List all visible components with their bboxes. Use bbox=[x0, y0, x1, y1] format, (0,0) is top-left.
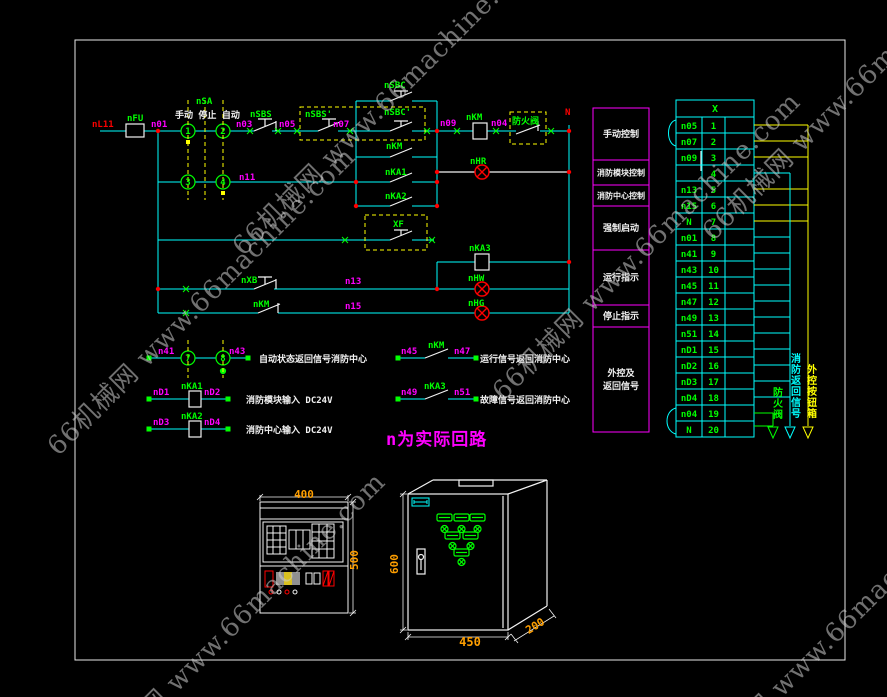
legend-coil-symbol-nKA1 bbox=[189, 391, 201, 407]
annotation-label: 消防模块控制 bbox=[597, 168, 645, 178]
terminal-cable-brackets bbox=[667, 120, 676, 434]
terminal-row-label: nD3 bbox=[681, 378, 697, 388]
terminal-row-label: n13 bbox=[681, 186, 697, 196]
terminal-row-label: n41 bbox=[681, 250, 697, 260]
legend-desc-fault: 故障信号返回消防中心 bbox=[480, 394, 570, 406]
trunk-label-char: 控 bbox=[807, 374, 817, 387]
cable-arrow-yellow bbox=[803, 427, 813, 438]
cabinet-indicators bbox=[437, 514, 485, 566]
terminal-row-label: n45 bbox=[681, 282, 697, 292]
legend-contact-nKM: nKM bbox=[428, 341, 445, 351]
cabinet-top-vent bbox=[459, 480, 493, 486]
legend-wire-nD4: nD4 bbox=[204, 418, 221, 428]
wire-label-n04: n04 bbox=[491, 119, 508, 129]
cad-drawing-canvas: nL11nFUn01nSA手动 停止 自动n03nSBSn05nSBS'n07n… bbox=[0, 0, 887, 697]
cable-arrow-green bbox=[768, 427, 778, 438]
contact-label-nSBC: nSBC bbox=[384, 81, 406, 91]
legend-wire-n51: n51 bbox=[454, 388, 470, 398]
terminal-row-number: 7 bbox=[711, 218, 716, 228]
legend-wire-nD2: nD2 bbox=[204, 388, 220, 398]
annotation-column: 手动控制消防模块控制消防中心控制强制启动运行指示停止指示外控及返回信号 bbox=[593, 108, 649, 432]
neutral-label-N: N bbox=[565, 108, 570, 118]
trunk-label-char: 按 bbox=[807, 385, 817, 398]
contact-label-nKM-nc: nKM bbox=[253, 300, 270, 310]
cabinet-front-view bbox=[257, 494, 356, 616]
breaker-2 bbox=[289, 530, 310, 549]
terminal-row-number: 13 bbox=[708, 314, 719, 324]
terminal-row-number: 12 bbox=[708, 298, 719, 308]
terminal-row-label: n47 bbox=[681, 298, 697, 308]
legend-wire-n47: n47 bbox=[454, 347, 470, 357]
selector-contact-2: 2 bbox=[220, 127, 225, 137]
legend-contact-nKA3: nKA3 bbox=[424, 382, 446, 392]
terminal-row-label: nD4 bbox=[681, 394, 698, 404]
terminal-row-number: 10 bbox=[708, 266, 719, 276]
terminal-row-label: nD1 bbox=[681, 346, 697, 356]
annotation-label: 消防中心控制 bbox=[597, 191, 645, 201]
legend-coil-nKA2: nKA2 bbox=[181, 412, 203, 422]
wire-label-nL11: nL11 bbox=[92, 120, 114, 130]
terminal-row-number: 20 bbox=[708, 426, 719, 436]
terminal-row-label: n05 bbox=[681, 122, 697, 132]
wire-label-n01: n01 bbox=[151, 120, 167, 130]
coil-nKM bbox=[473, 123, 487, 139]
terminal-row-label: N bbox=[686, 426, 691, 436]
terminal-row-number: 5 bbox=[711, 186, 716, 196]
cable-arrow-cyan bbox=[785, 427, 795, 438]
legend-wire-nD3: nD3 bbox=[153, 418, 169, 428]
trunk-label-char: 钮 bbox=[806, 396, 817, 409]
contact-label-nSBC-prime: nSBC' bbox=[384, 108, 411, 118]
selector-contact-8: 8 bbox=[220, 354, 225, 364]
selector-contacts bbox=[181, 124, 230, 374]
terminal-row-number: 17 bbox=[708, 378, 719, 388]
coil-label-nKM: nKM bbox=[466, 113, 483, 123]
selector-linkage-lines bbox=[188, 100, 223, 378]
coil-nKA3 bbox=[475, 254, 489, 270]
dim-front-width: 400 bbox=[294, 488, 314, 501]
trunk-label-char: 防 bbox=[791, 363, 801, 376]
junction-dots bbox=[156, 129, 571, 291]
terminal-row-number: 9 bbox=[711, 250, 716, 260]
terminal-row-number: 1 bbox=[711, 122, 716, 132]
damper-box-label: 防火阀 bbox=[512, 115, 539, 127]
wire-label-n07: n07 bbox=[333, 120, 349, 130]
terminal-row-label: n07 bbox=[681, 138, 697, 148]
terminal-row-label: n01 bbox=[681, 234, 697, 244]
selector-contact-1: 1 bbox=[185, 127, 190, 137]
wire-label-n03: n03 bbox=[236, 120, 252, 130]
indicator-lamps bbox=[475, 165, 489, 320]
cabinet-3d-view bbox=[400, 480, 556, 643]
terminal-row-number: 15 bbox=[708, 346, 719, 356]
selector-mode-text: 手动 停止 自动 bbox=[175, 109, 240, 121]
terminal-row-number: 8 bbox=[711, 234, 716, 244]
trunk-label-char: 返 bbox=[791, 374, 801, 387]
legend-desc-run: 运行信号返回消防中心 bbox=[480, 353, 570, 365]
terminal-row-number: 19 bbox=[708, 410, 719, 420]
legend-wire-n41: n41 bbox=[158, 347, 174, 357]
terminal-row-label: n49 bbox=[681, 314, 697, 324]
selector-label-nSA: nSA bbox=[196, 97, 213, 107]
contact-label-nXB: nXB bbox=[241, 276, 258, 286]
selector-contact-7: 7 bbox=[185, 354, 190, 364]
selector-contact-3: 3 bbox=[185, 178, 190, 188]
trunk-label-char: 外 bbox=[806, 363, 817, 376]
dim-box-width: 450 bbox=[459, 635, 481, 649]
legend-wire-n49: n49 bbox=[401, 388, 417, 398]
annotation-label: 手动控制 bbox=[603, 128, 639, 140]
terminal-row-number: 6 bbox=[711, 202, 716, 212]
rail-end-clamp bbox=[265, 571, 273, 587]
legend-desc-auto: 自动状态返回信号消防中心 bbox=[259, 353, 367, 365]
trunk-label-char: 箱 bbox=[807, 407, 817, 420]
terminal-row-number: 4 bbox=[711, 170, 717, 180]
legend-coil-nKA1: nKA1 bbox=[181, 382, 203, 392]
contact-label-nKM-hold: nKM bbox=[386, 142, 403, 152]
terminal-row-number: 14 bbox=[708, 330, 719, 340]
terminal-row-label: nD2 bbox=[681, 362, 697, 372]
fuse-symbol bbox=[126, 124, 144, 137]
button-label-nSBS-prime: nSBS' bbox=[305, 110, 332, 120]
coil-label-nKA3: nKA3 bbox=[469, 244, 491, 254]
trunk-label-char: 消 bbox=[791, 352, 801, 365]
terminal-row-label: N bbox=[686, 218, 691, 228]
note-text: n为实际回路 bbox=[386, 429, 487, 450]
wire-label-n11: n11 bbox=[239, 173, 255, 183]
lamp-label-nHW: nHW bbox=[468, 274, 485, 284]
legend-wire-n45: n45 bbox=[401, 347, 417, 357]
wire-label-n13: n13 bbox=[345, 277, 361, 287]
dashed-remote-boxes bbox=[188, 100, 546, 378]
wire-label-n15: n15 bbox=[345, 302, 361, 312]
terminal-row-number: 11 bbox=[708, 282, 719, 292]
terminal-row-number: 18 bbox=[708, 394, 719, 404]
terminal-row-label: n43 bbox=[681, 266, 697, 276]
lamp-label-nHR: nHR bbox=[470, 157, 487, 167]
dim-front-height: 500 bbox=[348, 550, 361, 570]
terminal-row-label: n15 bbox=[681, 202, 697, 212]
contact-label-XF: XF bbox=[393, 220, 404, 230]
terminal-row-number: 2 bbox=[711, 138, 716, 148]
wire-label-n05: n05 bbox=[279, 120, 295, 130]
selector-contact-4: 4 bbox=[220, 178, 226, 188]
button-label-nSBS: nSBS bbox=[250, 110, 272, 120]
annotation-label: 停止指示 bbox=[603, 310, 639, 322]
terminal-row-number: 16 bbox=[708, 362, 719, 372]
contact-label-nKA2: nKA2 bbox=[385, 192, 407, 202]
terminal-row-label: n51 bbox=[681, 330, 697, 340]
contact-label-nKA1: nKA1 bbox=[385, 168, 407, 178]
legend-desc-module: 消防模块输入 DC24V bbox=[246, 394, 333, 406]
cable-trunk-labels: 防火阀消防返回信号外控按钮箱 bbox=[773, 352, 817, 421]
fuse-label-nFU: nFU bbox=[127, 114, 143, 124]
annotation-label: 返回信号 bbox=[603, 380, 639, 392]
annotation-label: 运行指示 bbox=[603, 272, 639, 284]
trunk-label-char: 防 bbox=[773, 386, 783, 399]
legend-wire-n43: n43 bbox=[229, 347, 245, 357]
annotation-label: 外控及 bbox=[606, 367, 635, 379]
annotation-label: 强制启动 bbox=[603, 222, 639, 234]
trunk-label-char: 阀 bbox=[773, 408, 783, 421]
annotation-box bbox=[593, 327, 649, 432]
trunk-label-char: 信 bbox=[791, 396, 801, 409]
legend-coil-symbol-nKA2 bbox=[189, 421, 201, 437]
legend-desc-center: 消防中心输入 DC24V bbox=[246, 424, 333, 436]
trunk-label-char: 号 bbox=[791, 408, 801, 420]
cabinet-nameplate bbox=[412, 498, 429, 506]
terminal-row-label: n09 bbox=[681, 154, 697, 164]
terminal-row-label: n04 bbox=[681, 410, 698, 420]
trunk-label-char: 火 bbox=[773, 398, 784, 410]
dim-box-height: 600 bbox=[388, 554, 401, 574]
legend-wire-nD1: nD1 bbox=[153, 388, 169, 398]
lamp-label-nHG: nHG bbox=[468, 299, 484, 309]
terminal-row-number: 3 bbox=[711, 154, 716, 164]
trunk-label-char: 回 bbox=[791, 386, 801, 398]
wire-label-n09: n09 bbox=[440, 119, 456, 129]
terminal-table-header: X bbox=[712, 104, 718, 115]
schematic-svg: nL11nFUn01nSA手动 停止 自动n03nSBSn05nSBS'n07n… bbox=[0, 0, 887, 697]
